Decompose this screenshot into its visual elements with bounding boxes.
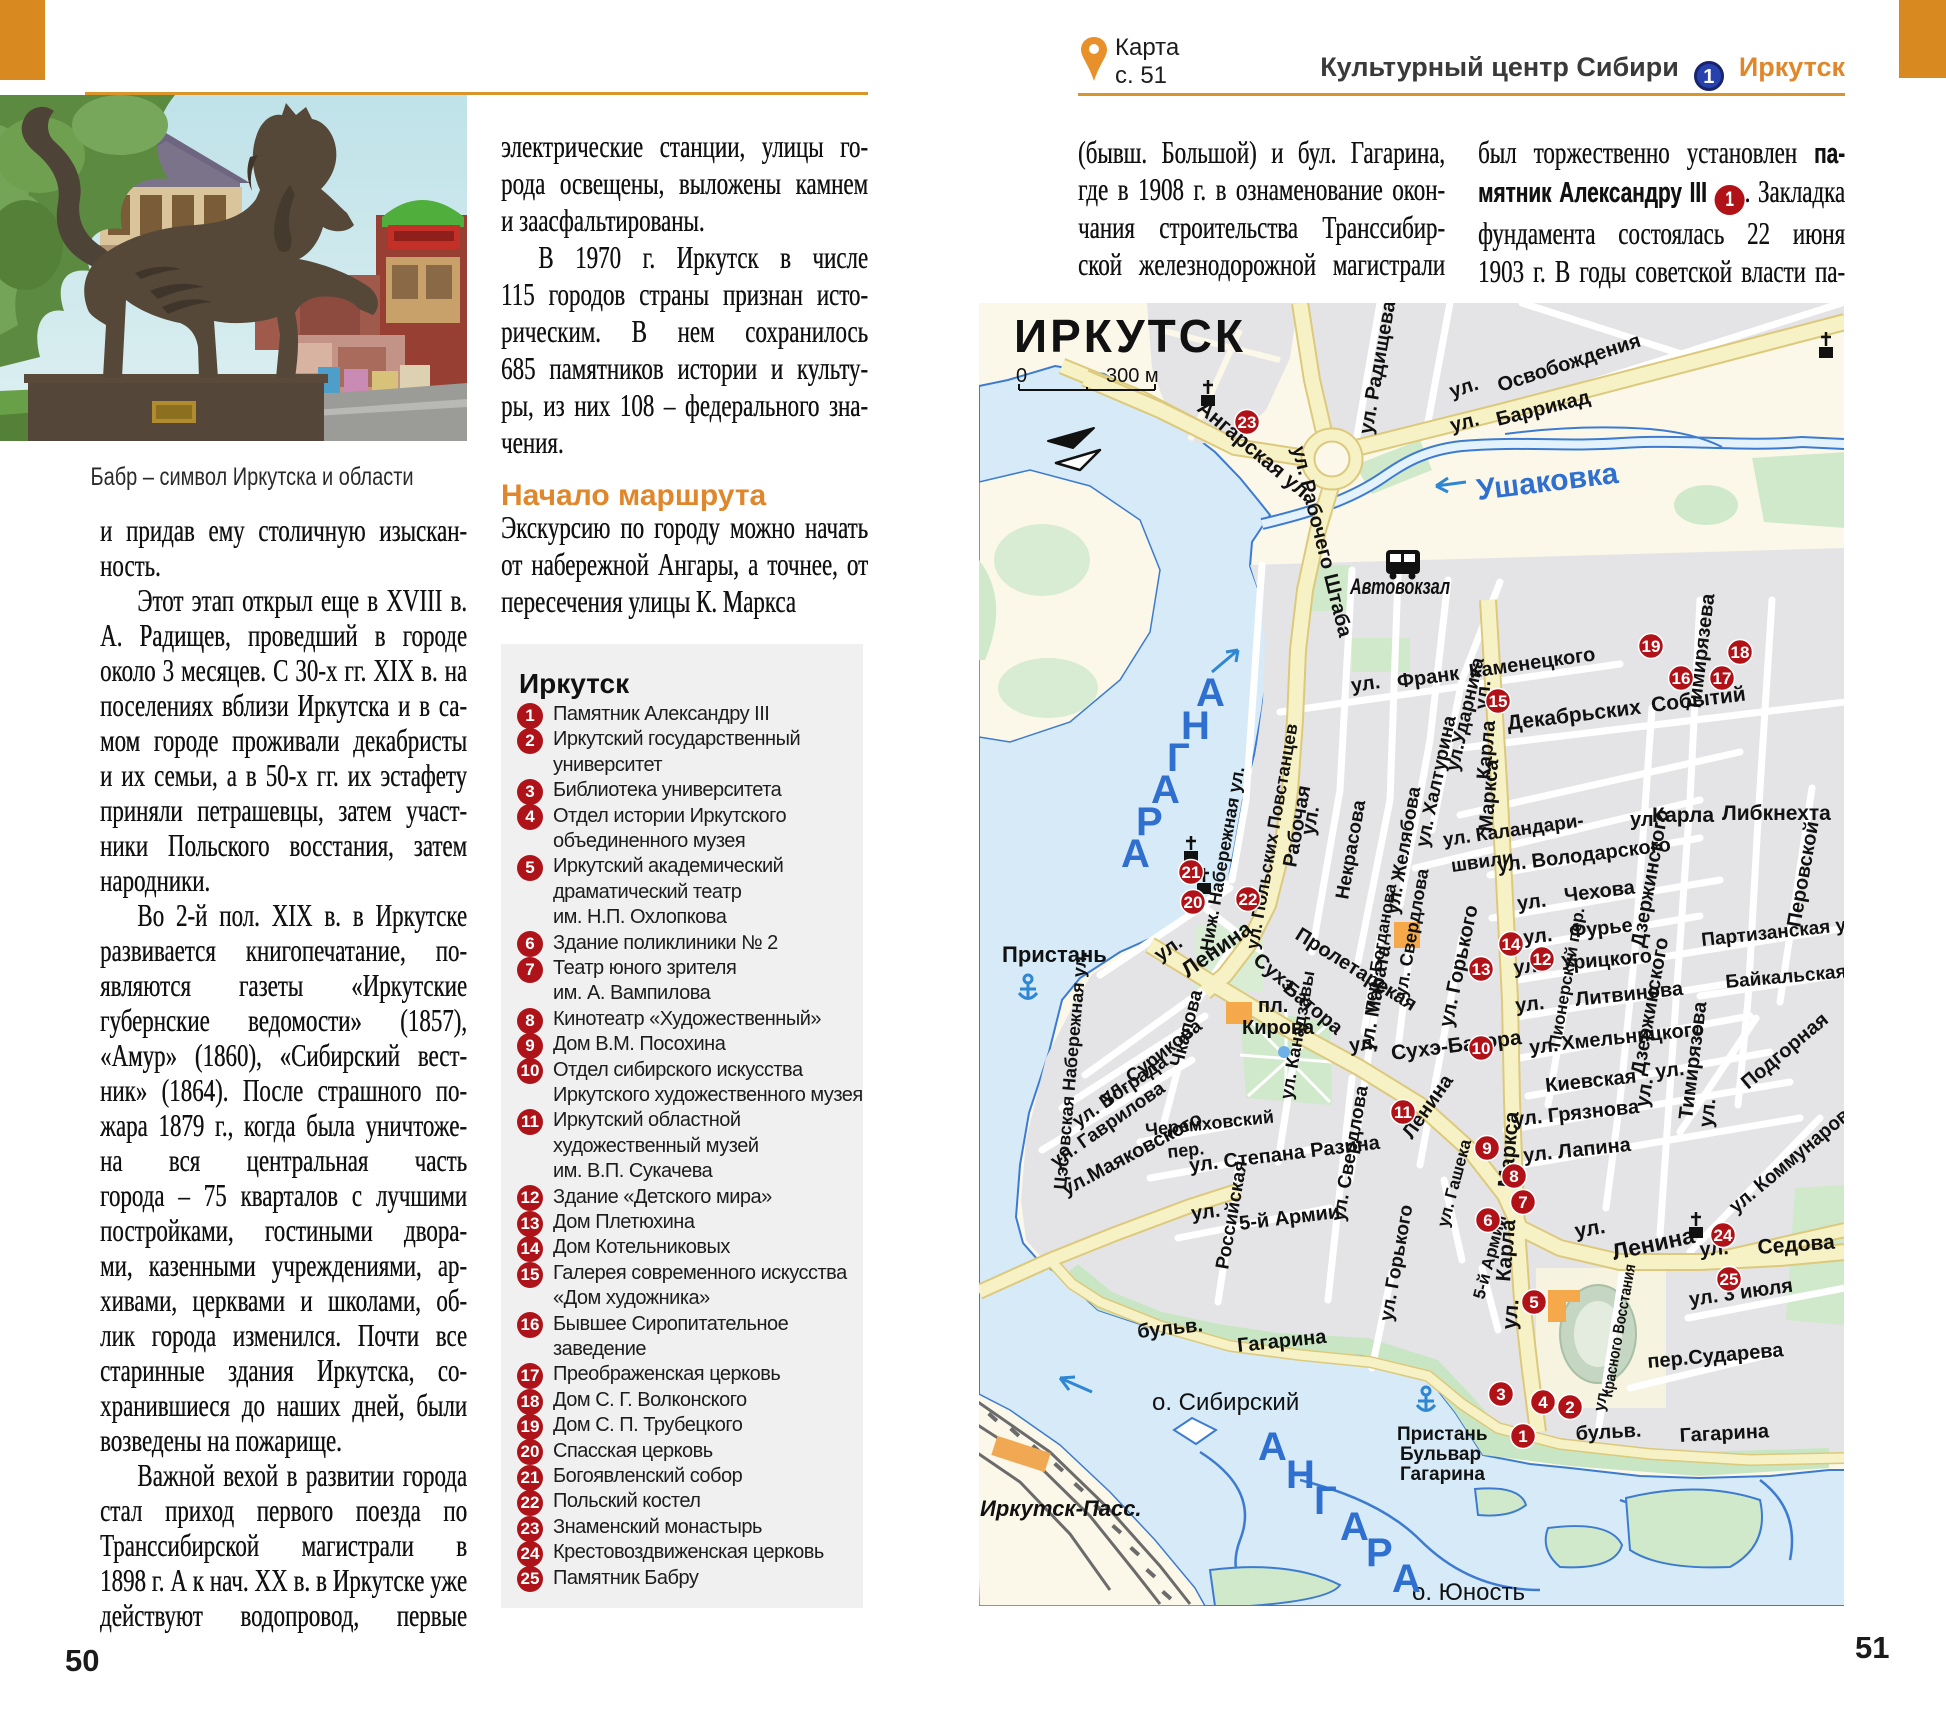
svg-text:12: 12 <box>1533 950 1552 969</box>
svg-text:20: 20 <box>1184 893 1203 912</box>
svg-text:5: 5 <box>1529 1293 1538 1312</box>
svg-text:19: 19 <box>1642 637 1661 656</box>
svg-text:ул.: ул. <box>1348 1032 1380 1057</box>
svg-text:3: 3 <box>1496 1385 1505 1404</box>
svg-text:о. Сибирский: о. Сибирский <box>1152 1389 1299 1416</box>
svg-text:10: 10 <box>1472 1039 1491 1058</box>
svg-text:ул.: ул. <box>1654 1058 1685 1083</box>
svg-text:А: А <box>1340 1505 1369 1549</box>
svg-text:8: 8 <box>1509 1167 1518 1186</box>
svg-text:1: 1 <box>1518 1427 1527 1446</box>
svg-text:23: 23 <box>1238 413 1257 432</box>
svg-text:Г: Г <box>1314 1479 1337 1523</box>
svg-text:24: 24 <box>1714 1226 1733 1245</box>
svg-text:А: А <box>1392 1557 1421 1601</box>
svg-text:11: 11 <box>1394 1103 1412 1122</box>
svg-text:Гагарина: Гагарина <box>1400 1464 1485 1485</box>
svg-text:0: 0 <box>1016 365 1027 387</box>
svg-text:6: 6 <box>1483 1211 1492 1230</box>
svg-text:ИРКУТСК: ИРКУТСК <box>1014 310 1246 362</box>
svg-text:18: 18 <box>1731 643 1750 662</box>
svg-text:А: А <box>1121 832 1150 876</box>
svg-text:7: 7 <box>1518 1193 1527 1212</box>
svg-text:Либкнехта: Либкнехта <box>1722 802 1831 825</box>
svg-text:9: 9 <box>1482 1139 1491 1158</box>
svg-text:Бульвар: Бульвар <box>1400 1444 1481 1465</box>
svg-text:17: 17 <box>1713 669 1732 688</box>
svg-text:Р: Р <box>1366 1531 1393 1575</box>
svg-text:Н: Н <box>1286 1453 1315 1497</box>
svg-text:16: 16 <box>1672 669 1691 688</box>
svg-text:22: 22 <box>1239 890 1258 909</box>
svg-text:Кирова: Кирова <box>1242 1017 1315 1039</box>
svg-text:пл.: пл. <box>1258 995 1288 1017</box>
svg-text:А: А <box>1258 1425 1287 1469</box>
svg-text:ул.: ул. <box>1522 924 1553 949</box>
svg-text:Пристань: Пристань <box>1397 1424 1488 1445</box>
svg-text:Автовокзал: Автовокзал <box>1349 574 1450 599</box>
svg-text:Пристань: Пристань <box>1002 942 1107 967</box>
svg-text:2: 2 <box>1565 1398 1574 1417</box>
svg-text:ул.: ул. <box>1514 992 1545 1017</box>
svg-text:13: 13 <box>1472 960 1491 979</box>
svg-text:15: 15 <box>1489 692 1508 711</box>
svg-text:4: 4 <box>1538 1393 1548 1412</box>
svg-text:300 м: 300 м <box>1106 365 1159 387</box>
svg-text:ул.: ул. <box>1498 1298 1524 1330</box>
svg-text:25: 25 <box>1720 1270 1739 1289</box>
svg-text:21: 21 <box>1182 863 1201 882</box>
svg-text:14: 14 <box>1502 935 1521 954</box>
svg-text:Иркутск-Пасс.: Иркутск-Пасс. <box>980 1496 1142 1521</box>
svg-text:ул.: ул. <box>1350 671 1382 697</box>
svg-text:бульв.: бульв. <box>1575 1420 1642 1445</box>
svg-text:о. Юность: о. Юность <box>1412 1579 1525 1606</box>
svg-text:ул.: ул. <box>1190 1200 1222 1225</box>
svg-text:ул.: ул. <box>1516 890 1548 915</box>
